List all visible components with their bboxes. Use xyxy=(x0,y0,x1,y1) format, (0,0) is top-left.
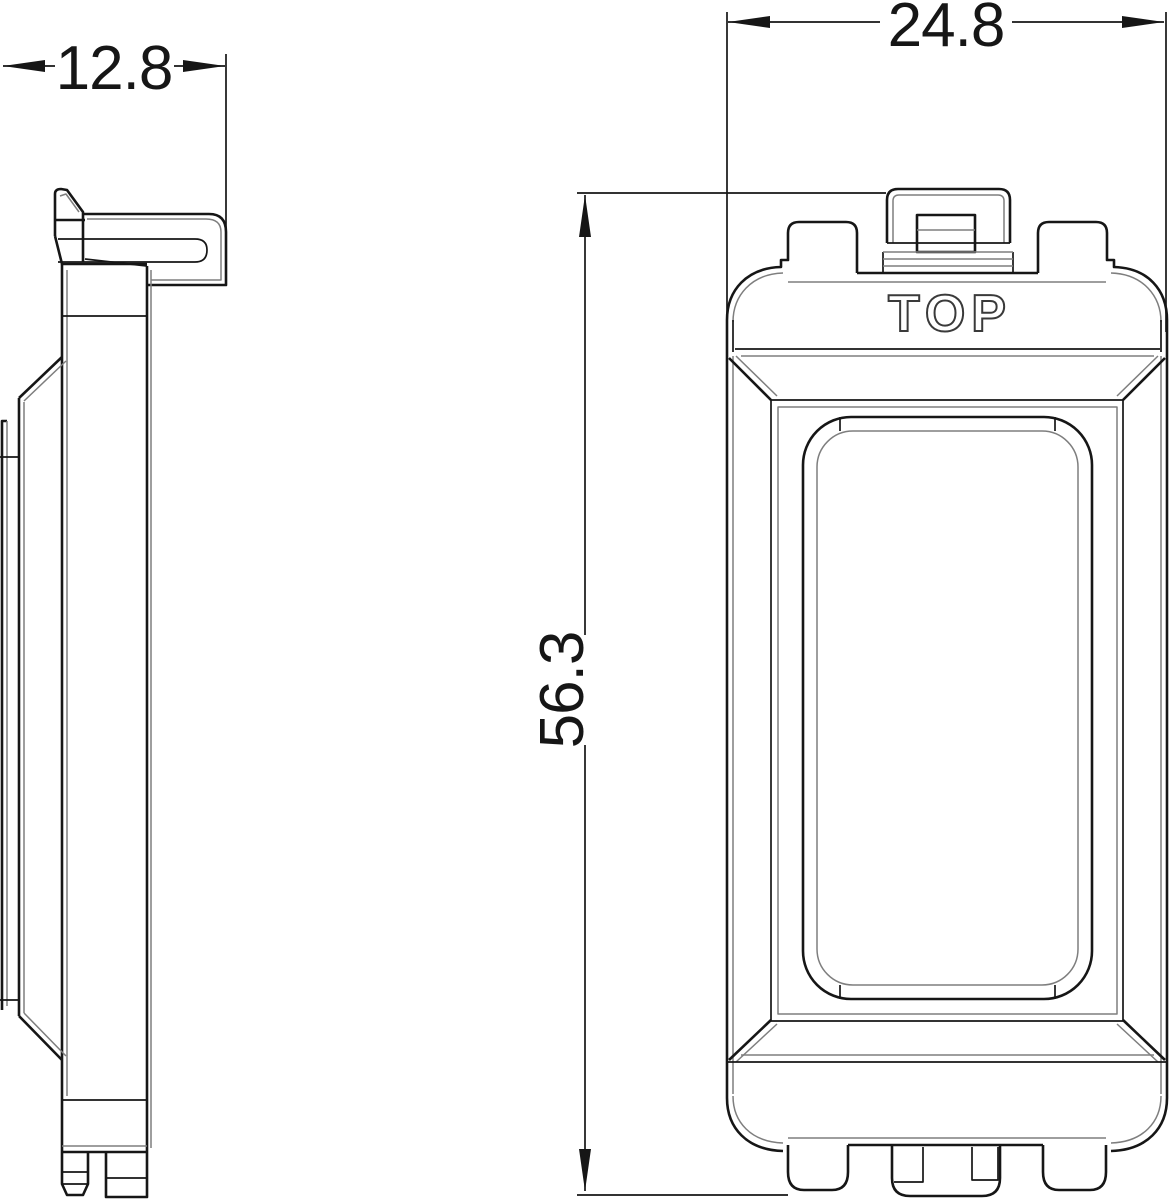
front-latch-window xyxy=(917,215,975,252)
side-rocker-shoulder-top-inner xyxy=(24,361,66,401)
front-leg-left xyxy=(788,1145,848,1190)
front-latch-tab-inner xyxy=(893,195,1004,243)
side-foot-back xyxy=(106,1152,147,1197)
front-chamfer-tr xyxy=(1123,358,1165,400)
front-center-foot-step-left xyxy=(894,1147,923,1182)
dim-height-arrow-bottom xyxy=(579,1149,591,1191)
side-latch-arm-slot xyxy=(58,239,207,262)
side-latch-arm-inner xyxy=(87,219,221,280)
technical-drawing-page: TOP 12.8 24.8 56.3 xyxy=(0,0,1173,1200)
front-shoulder-tl-inner xyxy=(733,273,783,322)
front-view: TOP xyxy=(727,189,1167,1196)
side-foot-front xyxy=(62,1152,88,1195)
front-chamfer-tl xyxy=(729,358,771,400)
dim-width-arrow-right xyxy=(1122,16,1164,28)
front-chamfer-br-inner xyxy=(1117,1024,1158,1062)
side-rocker-shoulder-bottom-inner xyxy=(24,1013,66,1056)
side-rocker-shoulder-top xyxy=(19,357,62,398)
dim-width-arrow-left xyxy=(728,16,770,28)
dim-depth-arrow-right xyxy=(183,60,225,72)
dim-height-value: 56.3 xyxy=(528,632,597,749)
front-shoulder-br xyxy=(1111,1098,1167,1151)
side-latch-arm-top xyxy=(83,214,226,285)
front-center-foot-step-right xyxy=(972,1147,998,1180)
front-shoulder-tr xyxy=(1038,222,1167,320)
dim-depth-arrow-left xyxy=(3,60,45,72)
front-chamfer-bl xyxy=(729,1020,771,1060)
front-chamfer-tl-inner xyxy=(736,356,777,396)
front-chamfer-bl-inner xyxy=(736,1024,777,1062)
front-leg-right xyxy=(1043,1145,1106,1190)
dim-height-arrow-top xyxy=(579,195,591,237)
front-chamfer-br xyxy=(1123,1020,1165,1060)
front-bezel-opening xyxy=(771,400,1123,1021)
dim-width-value: 24.8 xyxy=(888,0,1005,60)
front-rocker-outline xyxy=(803,417,1092,999)
front-shoulder-bl xyxy=(727,1098,783,1151)
front-shoulder-tr-inner xyxy=(1111,273,1161,322)
side-view xyxy=(0,189,226,1197)
front-bezel-opening-inner xyxy=(778,407,1117,1014)
top-marking-text: TOP xyxy=(888,285,1012,343)
dimension-height: 56.3 xyxy=(528,193,886,1195)
technical-drawing-svg: TOP 12.8 24.8 56.3 xyxy=(0,0,1173,1200)
dimension-depth: 12.8 xyxy=(3,34,226,238)
dim-depth-value: 12.8 xyxy=(56,34,173,103)
side-rocker-shoulder-bottom xyxy=(19,1016,62,1060)
front-rocker-inner xyxy=(817,431,1078,985)
front-chamfer-tr-inner xyxy=(1117,356,1158,396)
side-hook-base xyxy=(55,236,62,264)
front-center-foot xyxy=(892,1145,1000,1196)
front-shoulder-tl xyxy=(727,222,857,320)
